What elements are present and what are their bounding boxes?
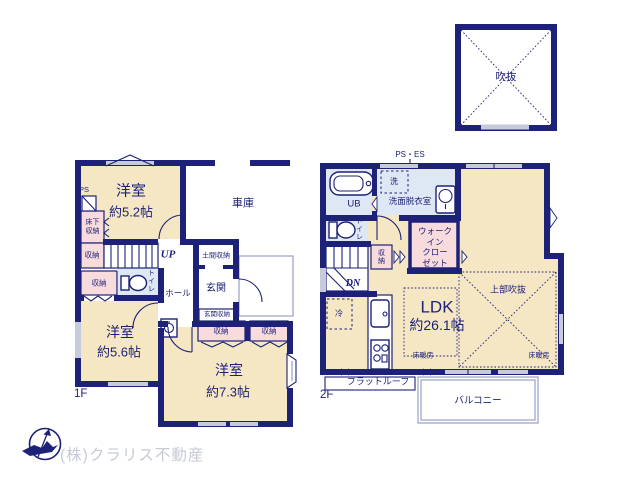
void-label: 吹抜 (496, 72, 517, 83)
floorplan-drawing (0, 0, 640, 480)
bedroom-56-size: 約5.6帖 (97, 346, 141, 359)
toilet-icon-2f (329, 222, 355, 238)
sink-icon (436, 186, 455, 213)
compass-icon (22, 429, 61, 460)
washroom-label: 洗面脱衣室 (389, 197, 432, 206)
bedroom-73-name: 洋室 (215, 363, 243, 377)
flat-roof-label: フラットルーフ (347, 378, 409, 387)
floor-heating-label-1: 床暖房 (413, 353, 434, 360)
entrance-storage-label: 玄関収納 (204, 312, 230, 319)
bedroom-56-area (81, 301, 158, 381)
bay-window (287, 354, 296, 388)
floor1-label: 1F (74, 389, 87, 401)
storage-label-b: 収納 (92, 279, 107, 287)
stairs-up-label: UP (161, 250, 176, 261)
toilet1-label: トイレ (148, 269, 155, 293)
storage-2f-label: 収納 (378, 249, 385, 265)
refrigerator-label: 冷 (335, 310, 343, 318)
ldk-size: 約26.1帖 (409, 318, 464, 332)
toilet2-label: トイレ (356, 217, 363, 241)
ps-label: PS (79, 186, 89, 194)
void-window (481, 125, 529, 130)
kitchen-sink-icon (371, 300, 389, 327)
floor-heating-label-2: 床暖房 (529, 353, 550, 360)
ldk-name: LDK (420, 299, 453, 316)
entrance-label: 玄関 (206, 284, 226, 294)
doma-storage-label: 土間収納 (202, 253, 230, 260)
bedroom-52-name: 洋室 (116, 184, 146, 199)
stairs-up (104, 243, 158, 268)
bedroom-73-size: 約7.3帖 (206, 386, 250, 399)
company-name: (株)クラリス不動産 (60, 448, 204, 464)
storage-label-c: 収納 (214, 327, 229, 335)
walk-in-closet-label: ウォーク イン クロー ゼット (407, 226, 463, 268)
bedroom-52-size: 約5.2帖 (109, 206, 153, 219)
floorplan-page: 吹抜 洋室 約5.2帖 車庫 PS 床下収納 収納 UP 収納 トイレ ホール … (0, 0, 640, 480)
storage-label-a: 収納 (85, 251, 100, 259)
laundry-label: 洗 (390, 178, 398, 186)
ps-es-label: PS・ES (395, 151, 424, 159)
garage-label: 車庫 (232, 199, 254, 210)
kitchen-counter (368, 295, 392, 371)
hall-label: ホール (165, 289, 191, 298)
porch-outline (239, 256, 293, 316)
bedroom-56-name: 洋室 (106, 325, 134, 339)
bathtub-icon (330, 172, 373, 195)
storage-label-d: 収納 (262, 327, 277, 335)
balcony-label: バルコニー (454, 396, 501, 406)
toilet-icon (121, 276, 147, 291)
underfloor-storage-label: 床下収納 (84, 219, 101, 236)
stairs-down-label: DN (346, 279, 360, 289)
unit-bath-label: UB (347, 199, 360, 209)
floor2-label: 2F (320, 390, 333, 402)
upper-void-label: 上部吹抜 (490, 286, 526, 295)
